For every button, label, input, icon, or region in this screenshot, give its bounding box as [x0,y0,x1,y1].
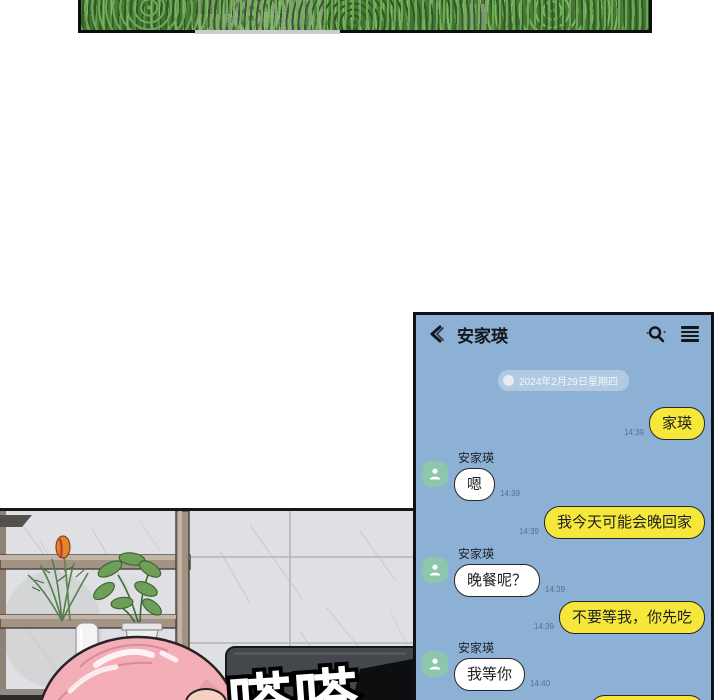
incoming-bubble: 晚餐呢？ [454,564,540,597]
search-icon[interactable] [644,322,668,346]
outgoing-bubble: 不要等我，你先吃 [559,601,705,634]
message-row-outgoing: 14:40 你应该会饿吧 [422,695,705,700]
message-time: 14:39 [534,622,554,634]
message-time: 14:40 [530,679,550,691]
menu-icon[interactable] [678,322,702,346]
message-time: 14:39 [500,489,520,501]
message-row-incoming: 安家瑛 我等你 14:40 [422,637,705,691]
avatar[interactable] [422,651,448,677]
avatar[interactable] [422,461,448,487]
back-icon[interactable] [425,322,449,346]
top-comic-panel [78,0,652,33]
clock-icon [503,375,514,386]
incoming-bubble: 我等你 [454,658,525,691]
outgoing-bubble: 你应该会饿吧 [589,695,705,700]
message-row-incoming: 安家瑛 嗯 14:39 [422,447,705,501]
message-row-outgoing: 14:39 我今天可能会晚回家 [422,506,705,539]
panel-shadow [195,30,340,34]
chat-window: 安家瑛 2024年2月29日星期四 14:39 家瑛 安家瑛 [413,312,714,700]
message-time: 14:39 [545,585,565,597]
message-time: 14:39 [624,428,644,440]
outgoing-bubble: 我今天可能会晚回家 [544,506,705,539]
chat-header: 安家瑛 [416,315,711,353]
outgoing-bubble: 家瑛 [649,407,705,440]
date-divider: 2024年2月29日星期四 [498,370,629,391]
avatar[interactable] [422,557,448,583]
message-time: 14:39 [519,527,539,539]
sender-name: 安家瑛 [458,639,550,656]
message-list: 14:39 家瑛 安家瑛 嗯 14:39 14:39 我今天可能会晚回家 [416,391,711,700]
message-row-incoming: 安家瑛 晚餐呢？ 14:39 [422,543,705,597]
chat-title: 安家瑛 [457,322,508,347]
message-row-outgoing: 14:39 不要等我，你先吃 [422,601,705,634]
sender-name: 安家瑛 [458,449,520,466]
message-row-outgoing: 14:39 家瑛 [422,407,705,440]
bottom-comic-panel: 嗒嗒 [0,508,416,700]
sfx-typing-text: 嗒嗒 [225,647,363,700]
incoming-bubble: 嗯 [454,468,495,501]
comic-page: 嗒嗒 安家瑛 2024年2月29日星期四 14:39 家瑛 [0,0,720,700]
foliage-texture [81,0,649,30]
sender-name: 安家瑛 [458,545,565,562]
